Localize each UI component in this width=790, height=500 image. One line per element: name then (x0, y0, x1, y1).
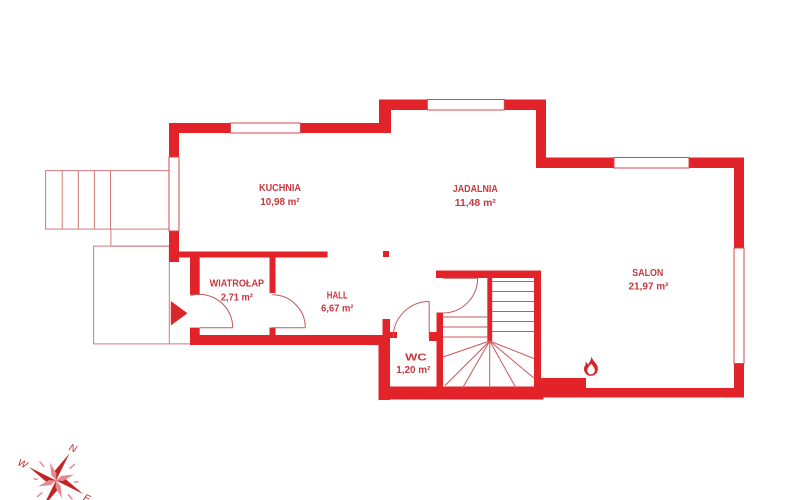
svg-text:KUCHNIA: KUCHNIA (259, 183, 301, 194)
svg-text:10,98 m²: 10,98 m² (260, 197, 300, 208)
svg-text:2,71 m²: 2,71 m² (221, 293, 254, 304)
svg-text:SALON: SALON (632, 268, 663, 279)
svg-text:6,67 m²: 6,67 m² (321, 304, 354, 315)
svg-text:WIATROŁAP: WIATROŁAP (210, 279, 265, 290)
svg-text:JADALNIA: JADALNIA (453, 184, 498, 195)
svg-text:HALL: HALL (327, 290, 348, 301)
svg-text:11,48 m²: 11,48 m² (455, 198, 497, 209)
svg-text:WC: WC (405, 353, 427, 364)
svg-text:1,20 m²: 1,20 m² (396, 365, 431, 376)
svg-text:21,97 m²: 21,97 m² (629, 282, 670, 293)
